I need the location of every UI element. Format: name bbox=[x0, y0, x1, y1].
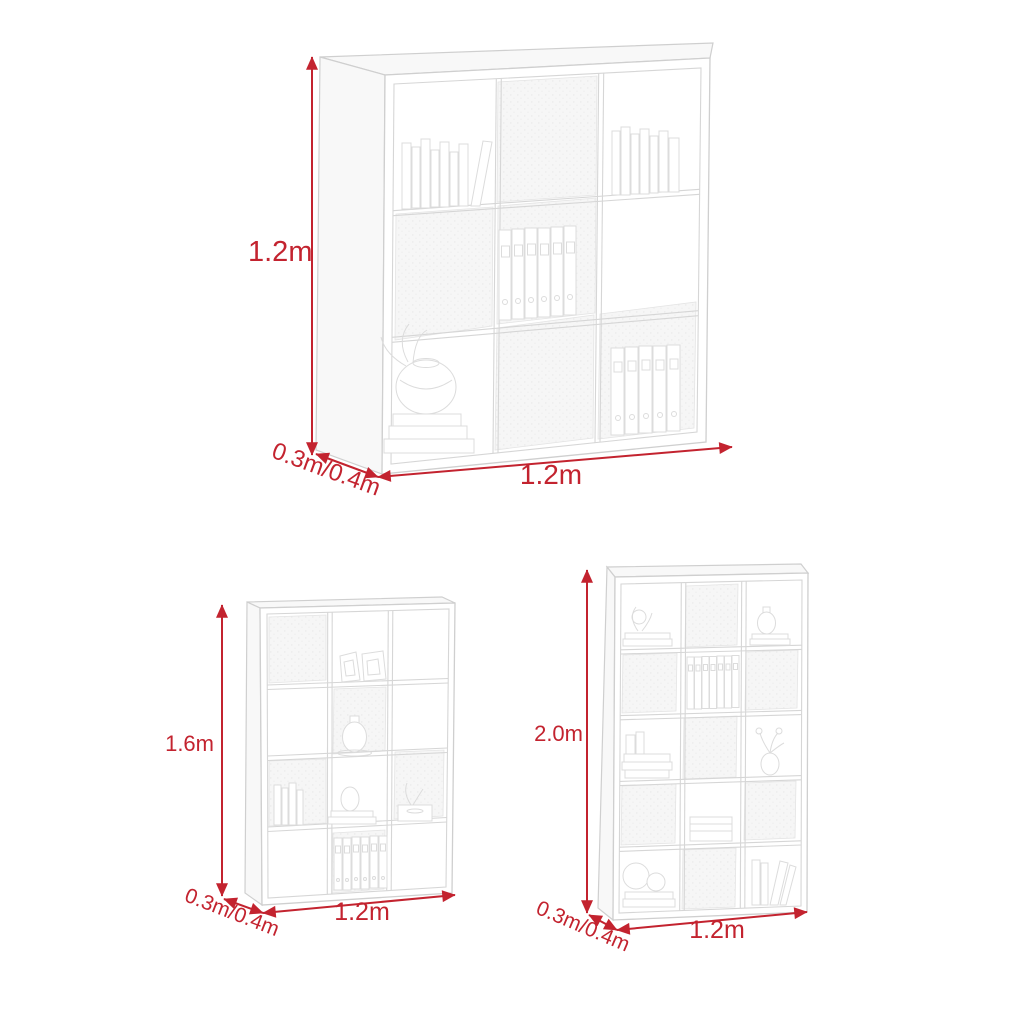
product-dimension-diagram: 1.2m 0.3m/0.4m 1.2m 1.6m 0.3m/0.4m 1.2m … bbox=[0, 0, 1024, 1024]
width-dimension-label: 1.2m bbox=[509, 461, 593, 489]
box-icon bbox=[690, 817, 732, 841]
height-dimension-label: 1.2m bbox=[248, 238, 306, 267]
bookshelf-3x5-drawing bbox=[530, 545, 850, 965]
binders-icon bbox=[687, 656, 739, 710]
height-dimension-label: 2.0m bbox=[533, 723, 583, 745]
side-panel bbox=[598, 567, 615, 920]
width-dimension-label: 1.2m bbox=[675, 918, 759, 943]
width-dimension-label: 1.2m bbox=[320, 900, 404, 925]
binders-icon bbox=[611, 345, 680, 435]
bookshelf-3x3-drawing bbox=[250, 30, 750, 510]
binders-icon bbox=[334, 836, 387, 890]
bookshelf-3x4-drawing bbox=[150, 580, 480, 940]
side-panel bbox=[316, 57, 385, 474]
side-panel bbox=[245, 602, 262, 905]
height-dimension-label: 1.6m bbox=[164, 733, 214, 755]
binders-icon bbox=[499, 226, 576, 320]
